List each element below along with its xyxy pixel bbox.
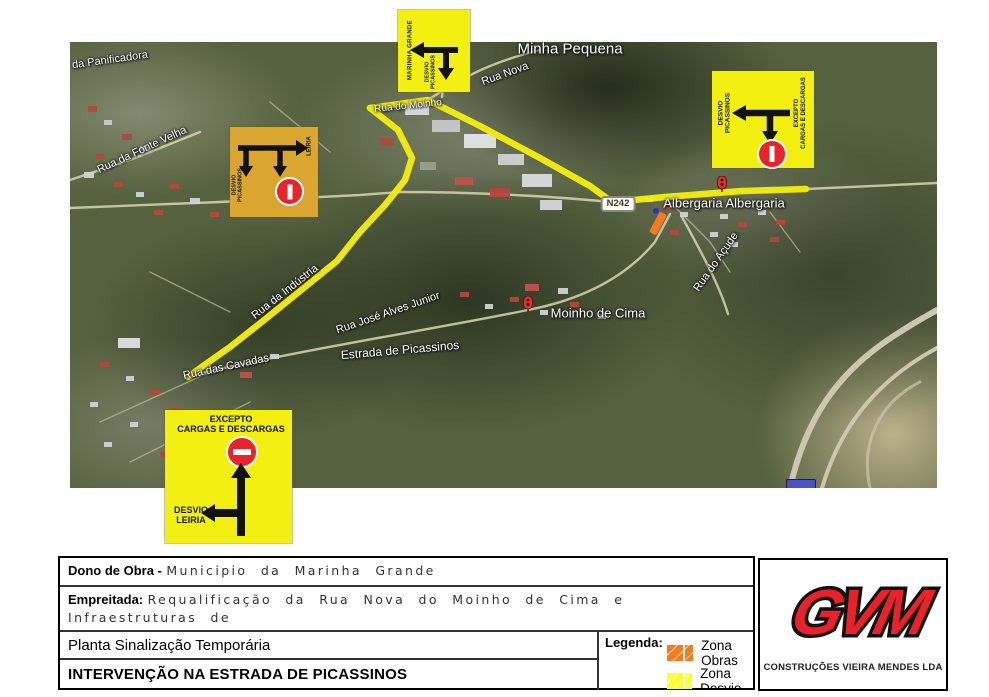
intervention-title: INTERVENÇÃO NA ESTRADA DE PICASSINOS [68,666,407,683]
legend-item-label: Zona Obras [701,638,753,668]
sign-city-label: MARINHA GRANDE [408,20,415,80]
contract-label: Empreitada: [68,592,143,607]
sign-exception-label: EXCEPTO CARGAS E DESCARGAS [794,77,808,149]
sign-destination-label: LEIRIA [307,136,314,156]
temporary-signaling-plan: Minha Pequena da Panificadora Rua Nova R… [0,0,989,697]
legend-item-zona-desvio: Zona Desvio [667,666,753,690]
motorway-shield [786,479,816,488]
works-zone-dot [653,208,659,214]
owner-label: Dono de Obra - [68,563,162,578]
legend-label: Legenda: [605,635,663,650]
detour-sign-top: MARINHA GRANDE DESVIO PICASSINOS [398,10,470,92]
sign-detour-label: DESVIO PICASSINOS [425,55,438,89]
owner-row: Dono de Obra - Municipio da Marinha Gran… [60,558,753,587]
map-pin-icon [523,296,534,312]
company-logo-box: GVM CONSTRUÇÕES VIEIRA MENDES LDA [758,558,948,691]
no-entry-sign-icon [275,177,304,206]
zona-obras-swatch-icon [667,645,693,661]
detour-sign-right: DESVIO PICASSINOS EXCEPTO CARGAS E DESCA… [712,71,814,168]
place-label-moinho-de-cima: Moinho de Cima [551,306,646,321]
detour-sign-orange: LEIRIA DESVIO PICASSINOS [230,127,318,217]
no-entry-sign-icon [757,139,787,169]
legend: Legenda: Zona Obras Zona Desvio [597,632,753,690]
road-shield-n242: N242 [601,196,636,212]
gvm-logo-icon: GVM [760,560,946,660]
sign-detour-label: DESVIO PICASSINOS [718,93,733,133]
place-label-minha-pequena: Minha Pequena [517,42,622,58]
map-pin-icon [717,176,728,192]
drawing-title-row: Planta Sinalização Temporária [60,632,597,660]
sign-detour-label: DESVIO LEIRIA [174,505,208,526]
contract-row: Empreitada: Requalificação da Rua Nova d… [60,587,753,632]
detour-sign-bottom: EXCEPTO CARGAS E DESCARGAS DESVIO LEIRIA [165,410,292,543]
contract-value-line1: Requalificação da Rua Nova do Moinho de … [68,592,624,625]
sign-detour-label: DESVIO PICASSINOS [232,168,245,202]
place-label-albergaria: Albergaria Albergaria [663,196,784,211]
gvm-logo-text: GVM [785,576,941,648]
intervention-title-row: INTERVENÇÃO NA ESTRADA DE PICASSINOS [60,660,597,690]
zona-desvio-swatch-icon [667,673,692,689]
owner-value: Municipio da Marinha Grande [166,563,435,578]
company-name: CONSTRUÇÕES VIEIRA MENDES LDA [760,662,946,673]
legend-item-zona-obras: Zona Obras [667,638,753,668]
title-block: Dono de Obra - Municipio da Marinha Gran… [58,556,755,690]
drawing-title: Planta Sinalização Temporária [68,637,270,654]
legend-item-label: Zona Desvio [700,666,753,690]
building-roofs [84,104,785,457]
